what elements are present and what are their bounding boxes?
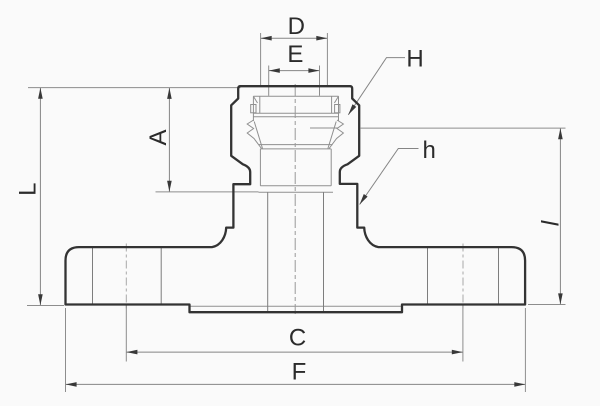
svg-text:D: D <box>288 13 305 40</box>
svg-text:H: H <box>406 45 423 72</box>
svg-text:A: A <box>145 129 172 145</box>
svg-text:h: h <box>423 137 436 164</box>
svg-text:C: C <box>289 325 306 352</box>
svg-text:E: E <box>287 41 303 68</box>
svg-text:L: L <box>15 183 42 196</box>
svg-text:F: F <box>292 359 307 386</box>
svg-text:l: l <box>538 220 565 226</box>
